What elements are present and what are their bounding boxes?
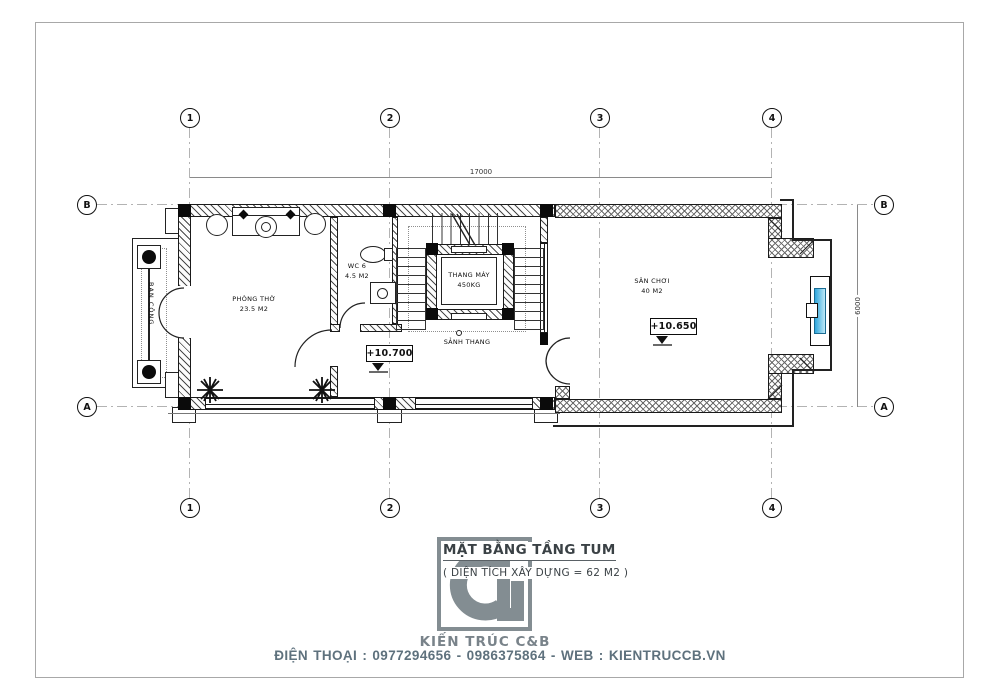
bay-outline (792, 239, 832, 241)
stair-post (456, 330, 462, 336)
grid-label: B (83, 200, 90, 211)
partition-stub (330, 366, 338, 397)
stair-flight-top (432, 213, 506, 244)
room-name: WC 6 (345, 261, 369, 271)
wall-pilaster (165, 372, 179, 398)
grid-bubble-4-top: 4 (762, 108, 782, 128)
footer-contact: ĐIỆN THOẠI : 0977294656 - 0986375864 - W… (0, 648, 1000, 663)
grid-label: 3 (597, 113, 604, 124)
stool (304, 213, 326, 235)
dimension-right-value: 6000 (854, 295, 862, 317)
bay-outline (792, 199, 794, 240)
wall-top-sanchoi (555, 204, 782, 218)
grid-label: 2 (387, 113, 394, 124)
balcony-column-core (142, 250, 156, 264)
shaft-corner (426, 243, 438, 255)
grid-bubble-2-bottom: 2 (380, 498, 400, 518)
dimension-line-top (190, 177, 772, 178)
column (178, 204, 191, 217)
grid-bubble-A-right: A (874, 397, 894, 417)
wall-stub-sanchoi (555, 386, 570, 399)
grid-line-3 (599, 128, 600, 498)
room-area: 23.5 M2 (232, 304, 275, 314)
balcony-label: BAN CÔNG (147, 282, 155, 325)
dimension-top-value: 17000 (468, 168, 494, 176)
shaft-corner (502, 243, 514, 255)
elevator-door-top (451, 246, 487, 253)
grid-line-4 (771, 128, 772, 498)
grid-bubble-4-bottom: 4 (762, 498, 782, 518)
door-opening-balcony (176, 286, 193, 338)
room-label-elevator: THANG MÁY 450KG (448, 270, 490, 291)
room-label-sanhthang: SẢNH THANG (444, 337, 491, 347)
grid-bubble-2-top: 2 (380, 108, 400, 128)
grid-bubble-3-bottom: 3 (590, 498, 610, 518)
drawing-subtitle: ( DIỆN TÍCH XÂY DỰNG = 62 M2 ) (443, 567, 628, 579)
grid-bubble-A-left: A (77, 397, 97, 417)
window-bottom-2 (415, 398, 533, 409)
column (383, 397, 396, 410)
bay-wall-top (768, 238, 814, 258)
room-label-sanchoi: SÂN CHƠI 40 M2 (634, 276, 669, 297)
bay-outline (830, 239, 832, 371)
grid-label: 1 (187, 503, 194, 514)
room-area: 4.5 M2 (345, 271, 369, 281)
grid-bubble-1-bottom: 1 (180, 498, 200, 518)
grid-label: 4 (769, 503, 776, 514)
window-bottom-1 (205, 398, 375, 409)
grid-label: A (880, 402, 887, 413)
bay-outline (792, 369, 794, 427)
grid-label: 2 (387, 503, 394, 514)
stool (206, 214, 228, 236)
column (540, 204, 553, 217)
wall-pilaster (165, 208, 179, 234)
room-name: PHÒNG THỜ (232, 294, 275, 304)
level-marker-sanchoi: +10.650 (650, 318, 697, 335)
column (540, 397, 553, 410)
floor-plan-sheet: 1 2 3 4 1 2 3 4 B A B A 17000 6000 BAN C… (0, 0, 1000, 700)
drawing-title: MẶT BẰNG TẦNG TUM (443, 542, 616, 561)
room-name: SÂN CHƠI (634, 276, 669, 286)
wall-hall-sanchoi (540, 217, 548, 243)
grid-label: B (880, 200, 887, 211)
column (383, 204, 396, 217)
grid-bubble-3-top: 3 (590, 108, 610, 128)
grid-label: A (83, 402, 90, 413)
shaft-corner (426, 308, 438, 320)
room-area: 40 M2 (634, 286, 669, 296)
toilet-tank (384, 248, 393, 261)
stair-flight-left (396, 248, 426, 330)
shaft-corner (502, 308, 514, 320)
grid-bubble-1-top: 1 (180, 108, 200, 128)
bay-window-handle (806, 303, 818, 318)
grid-label: 3 (597, 503, 604, 514)
level-marker-hall: +10.700 (366, 345, 413, 362)
eave-line-bottom (553, 425, 793, 427)
wall-hall-sanchoi-seg (540, 333, 548, 345)
room-label-phongtho: PHÒNG THỜ 23.5 M2 (232, 294, 275, 315)
bay-wall-bottom (768, 354, 814, 374)
grid-label: 1 (187, 113, 194, 124)
room-capacity: 450KG (448, 280, 490, 290)
drawing-title-wrap: MẶT BẰNG TẦNG TUM ( DIỆN TÍCH XÂY DỰNG =… (443, 539, 628, 580)
partition-wc-bottom (330, 324, 340, 332)
grid-label: 4 (769, 113, 776, 124)
partition-phongtho-wc (330, 217, 338, 325)
column (178, 397, 191, 410)
room-label-wc: WC 6 4.5 M2 (345, 261, 369, 282)
window-sill-line (168, 413, 560, 414)
wall-bottom-sanchoi (555, 399, 782, 413)
grid-line-2 (389, 128, 390, 498)
room-name: THANG MÁY (448, 270, 490, 280)
grid-bubble-B-left: B (77, 195, 97, 215)
sink-bowl (377, 288, 388, 299)
room-name: SẢNH THANG (444, 337, 491, 347)
altar-wreath-center (261, 222, 271, 232)
elevator-door-bottom (451, 313, 487, 320)
stair-flight-right (514, 248, 544, 330)
grid-bubble-B-right: B (874, 195, 894, 215)
balcony-column-core (142, 365, 156, 379)
bay-outline (792, 369, 832, 371)
